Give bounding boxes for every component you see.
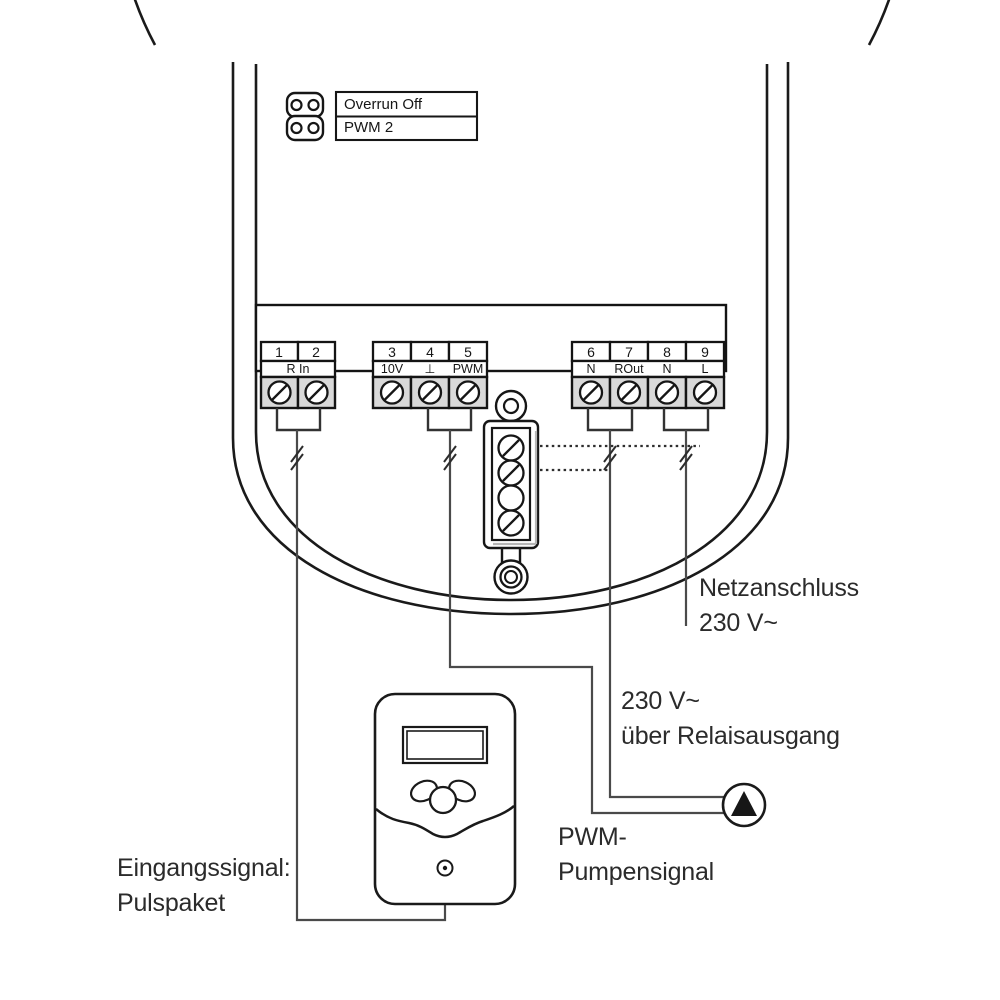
cable-clamp-4 [664, 408, 708, 430]
screw-icon [656, 382, 678, 404]
terminal-number-1: 1 [260, 342, 298, 361]
pe-terminal-block [484, 391, 538, 594]
terminal-number-8: 8 [648, 342, 686, 361]
terminal-number-5: 5 [449, 342, 487, 361]
controller-device [375, 694, 515, 904]
jumper-pin [292, 123, 302, 133]
screw-icon [618, 382, 640, 404]
label-relay-line2: über Relaisausgang [621, 719, 840, 754]
terminal-number-9: 9 [686, 342, 724, 361]
terminal-label-l: L [686, 361, 724, 377]
label-mains-line2: 230 V~ [699, 606, 859, 641]
cable-clamp-2 [428, 408, 471, 430]
pump-icon [723, 784, 765, 826]
screw-icon [457, 382, 479, 404]
cable-clamp-1 [277, 408, 320, 430]
screw-icon [269, 382, 291, 404]
terminal-label-gnd: ⊥ [411, 361, 449, 377]
housing-circle [117, 0, 907, 45]
controller-display [403, 727, 487, 763]
terminal-number-2: 2 [297, 342, 335, 361]
wiring-diagram: Overrun Off PWM 2 1 2 3 4 5 6 7 8 9 R In… [0, 0, 1000, 1000]
terminal-number-3: 3 [373, 342, 411, 361]
screw-icon [419, 382, 441, 404]
label-relay-output: 230 V~ über Relaisausgang [621, 684, 840, 754]
controller-screw-icon [438, 861, 453, 876]
screw-icon [306, 382, 328, 404]
label-mains-line1: Netzanschluss [699, 571, 859, 606]
mounting-hole-icon [504, 399, 518, 413]
diagram-lineart [0, 0, 1000, 1000]
label-input-line2: Pulspaket [117, 886, 291, 921]
terminal-number-7: 7 [610, 342, 648, 361]
jumper-pin [309, 100, 319, 110]
label-input-signal: Eingangssignal: Pulspaket [117, 851, 291, 921]
jumper-pin [292, 100, 302, 110]
jumper-pin [309, 123, 319, 133]
label-relay-line1: 230 V~ [621, 684, 840, 719]
hidden-connection-dotted [540, 446, 700, 470]
terminal-number-4: 4 [411, 342, 449, 361]
terminal-label-r-in: R In [261, 361, 335, 377]
terminal-label-n1: N [572, 361, 610, 377]
screw-icon [694, 382, 716, 404]
terminal-label-10v: 10V [373, 361, 411, 377]
screw-icon [580, 382, 602, 404]
jumper-option-top: Overrun Off [344, 93, 472, 116]
terminal-label-pwm: PWM [449, 361, 487, 377]
label-mains: Netzanschluss 230 V~ [699, 571, 859, 641]
jumper-block [287, 93, 323, 140]
label-pwm-line2: Pumpensignal [558, 855, 714, 890]
label-pwm-signal: PWM- Pumpensignal [558, 820, 714, 890]
terminal-number-6: 6 [572, 342, 610, 361]
terminal-label-rout: ROut [610, 361, 648, 377]
terminal-label-n2: N [648, 361, 686, 377]
cable-clamp-3 [588, 408, 632, 430]
screw-terminal-blocks [261, 377, 724, 408]
screw-icon [381, 382, 403, 404]
label-input-line1: Eingangssignal: [117, 851, 291, 886]
label-pwm-line1: PWM- [558, 820, 714, 855]
jumper-option-bottom: PWM 2 [344, 116, 472, 139]
